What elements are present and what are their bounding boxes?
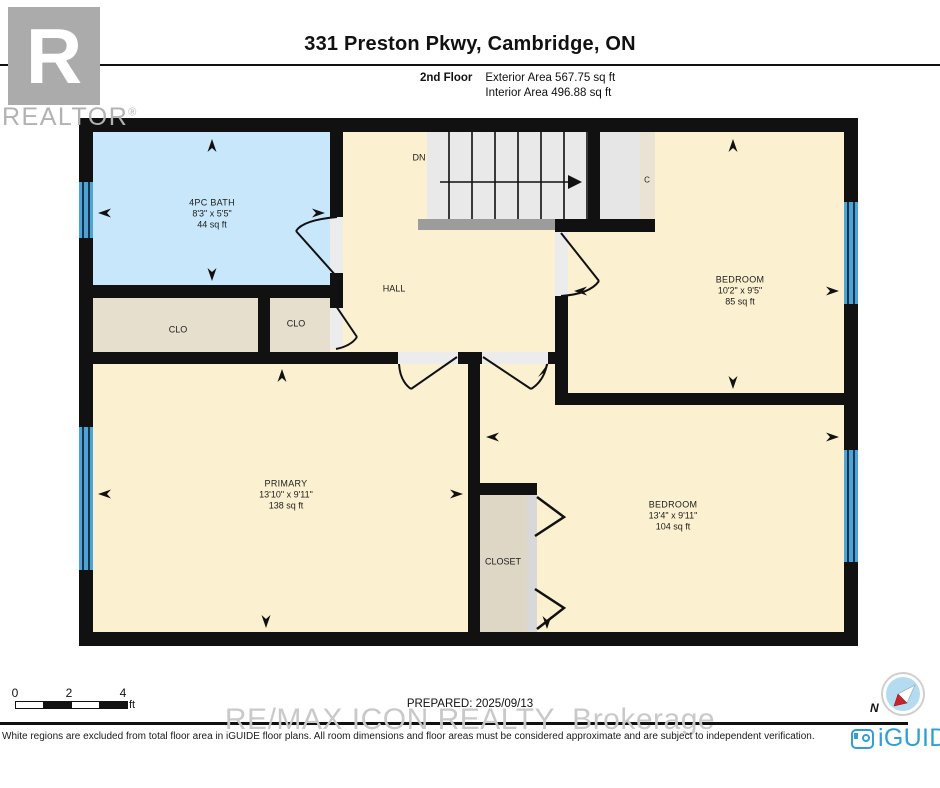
primary-door-arc: [399, 364, 411, 389]
floor-plan-page: R REALTOR® 331 Preston Pkwy, Cambridge, …: [0, 0, 940, 788]
dim-arrow-primary-down: [262, 615, 271, 628]
dim-arrow-bedroom-top-up: [729, 139, 738, 152]
bath-label: 4PC BATH 8'3" x 5'5" 44 sq ft: [189, 198, 235, 231]
prepared-date: PREPARED: 2025/09/13: [0, 698, 940, 710]
registered-mark: ®: [128, 107, 138, 119]
bedroom-bottom-door-arc: [531, 364, 547, 389]
dim-arrow-bedroom-bottom-left: [486, 433, 499, 442]
stairs-dn-label: DN: [413, 153, 426, 164]
realtor-wordmark: REALTOR®: [2, 103, 138, 132]
dim-arrow-bedroom-bottom-right: [826, 433, 839, 442]
plan-symbols-overlay: [0, 0, 940, 788]
clo2-door-leaf: [336, 306, 357, 337]
dim-arrow-bath-up: [208, 139, 217, 152]
hall-label: HALL: [383, 284, 406, 295]
bath-door-arc: [296, 217, 337, 231]
bedroom-top-door-arc: [561, 281, 599, 296]
dim-arrow-primary-right: [450, 490, 463, 499]
bedroom-bottom-door-leaf: [483, 357, 531, 389]
closet-c-label: C: [644, 175, 650, 186]
realtor-r-glyph: R: [26, 17, 82, 95]
clo1-label: CLO: [169, 325, 188, 336]
closet-bifold-bottom: [535, 589, 564, 629]
dim-arrow-bath-down: [208, 268, 217, 281]
primary-door-leaf: [411, 357, 457, 389]
dim-arrow-bath-right: [312, 209, 325, 218]
dim-arrow-bedroom-top-down: [729, 376, 738, 389]
closet-bifold-top: [535, 497, 564, 536]
bedroom-top-label: BEDROOM 10'2" x 9'5" 85 sq ft: [716, 275, 765, 308]
disclaimer-text: White regions are excluded from total fl…: [2, 731, 815, 742]
dim-arrow-primary-up: [278, 369, 287, 382]
bedroom-bottom-label: BEDROOM 13'4" x 9'11" 104 sq ft: [649, 500, 698, 533]
clo2-label: CLO: [287, 319, 306, 330]
dim-arrow-primary-left: [98, 490, 111, 499]
primary-label: PRIMARY 13'10" x 9'11" 138 sq ft: [259, 479, 313, 512]
closet-label: CLOSET: [485, 557, 521, 568]
bath-door-leaf: [296, 231, 337, 277]
dim-arrow-bath-left: [98, 209, 111, 218]
dim-arrow-bedroom-top-right: [826, 287, 839, 296]
clo2-door-arc: [336, 337, 357, 349]
bedroom-top-door-leaf: [561, 233, 599, 281]
stairs-direction-arrowhead: [568, 175, 582, 189]
realtor-logo: R: [8, 7, 100, 105]
